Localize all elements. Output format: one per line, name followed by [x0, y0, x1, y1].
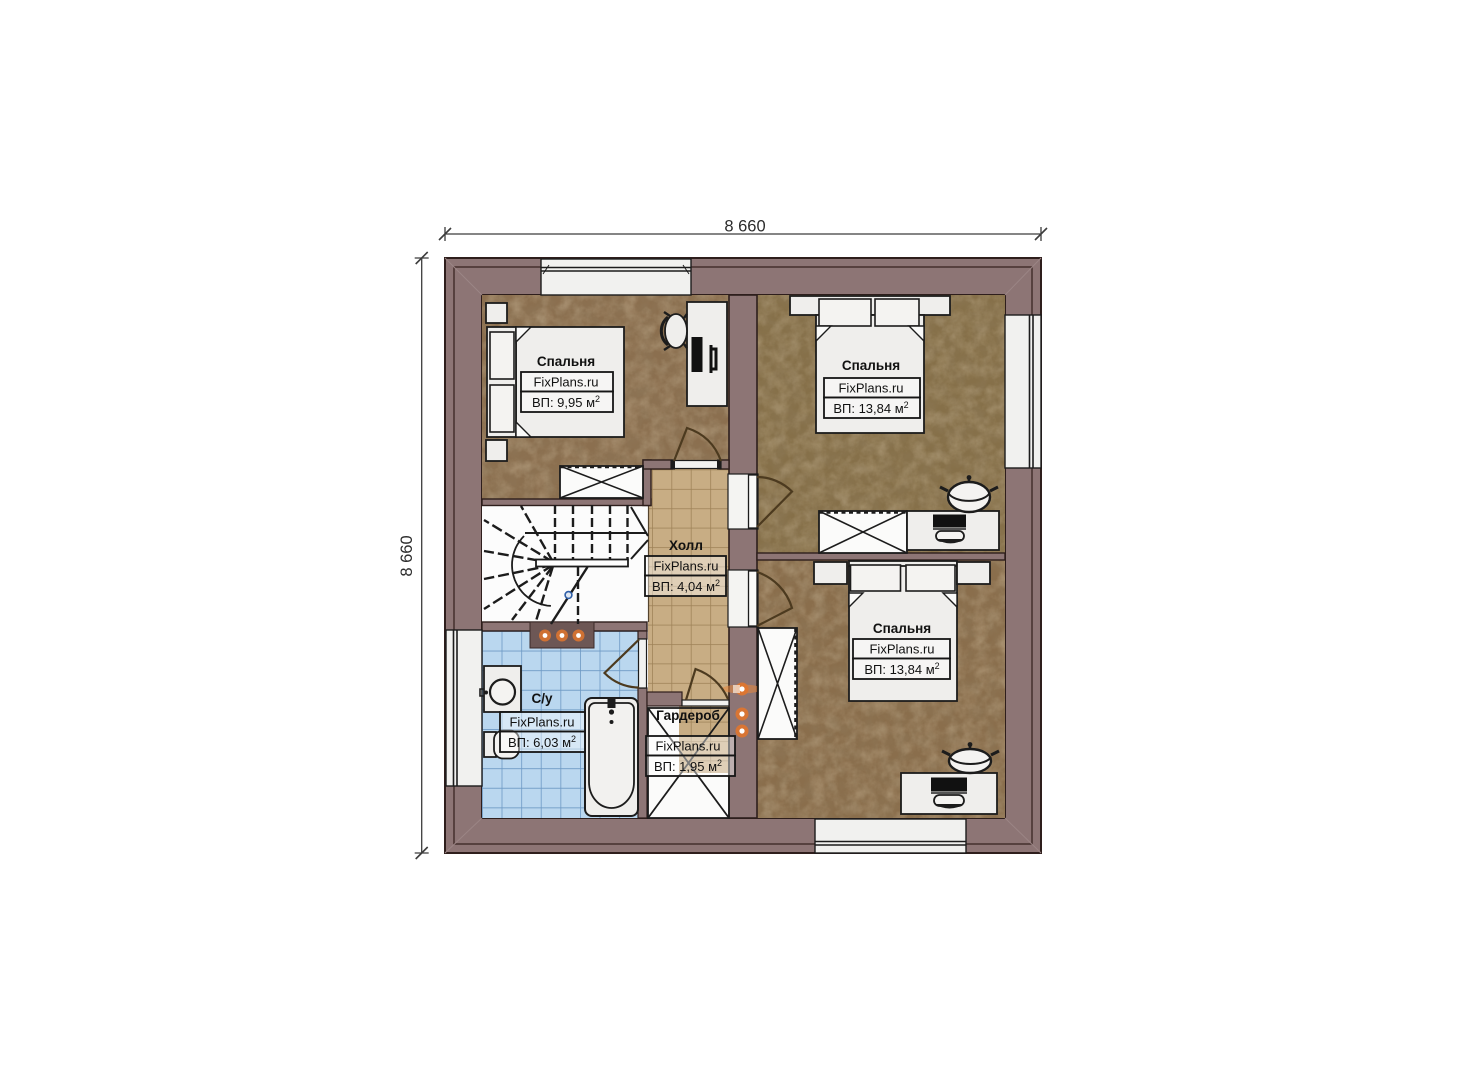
svg-text:FixPlans.ru: FixPlans.ru: [509, 715, 574, 730]
svg-text:ВП: 13,84 м2: ВП: 13,84 м2: [864, 661, 939, 677]
svg-text:ВП: 4,04 м2: ВП: 4,04 м2: [652, 578, 720, 594]
svg-text:8 660: 8 660: [398, 535, 416, 576]
svg-text:С/у: С/у: [531, 691, 553, 706]
svg-text:FixPlans.ru: FixPlans.ru: [655, 739, 720, 754]
svg-text:Спальня: Спальня: [842, 358, 900, 373]
svg-text:ВП: 9,95 м2: ВП: 9,95 м2: [532, 394, 600, 410]
svg-text:FixPlans.ru: FixPlans.ru: [533, 375, 598, 390]
svg-text:FixPlans.ru: FixPlans.ru: [838, 381, 903, 396]
svg-text:8 660: 8 660: [724, 218, 765, 236]
svg-text:Гардероб: Гардероб: [656, 708, 720, 723]
svg-text:Спальня: Спальня: [537, 354, 595, 369]
svg-text:FixPlans.ru: FixPlans.ru: [869, 642, 934, 657]
svg-text:ВП: 6,03 м2: ВП: 6,03 м2: [508, 734, 576, 750]
svg-text:Спальня: Спальня: [873, 621, 931, 636]
svg-text:FixPlans.ru: FixPlans.ru: [653, 559, 718, 574]
svg-text:ВП: 13,84 м2: ВП: 13,84 м2: [833, 400, 908, 416]
svg-text:Холл: Холл: [669, 538, 703, 553]
svg-text:ВП: 1,95 м2: ВП: 1,95 м2: [654, 758, 722, 774]
